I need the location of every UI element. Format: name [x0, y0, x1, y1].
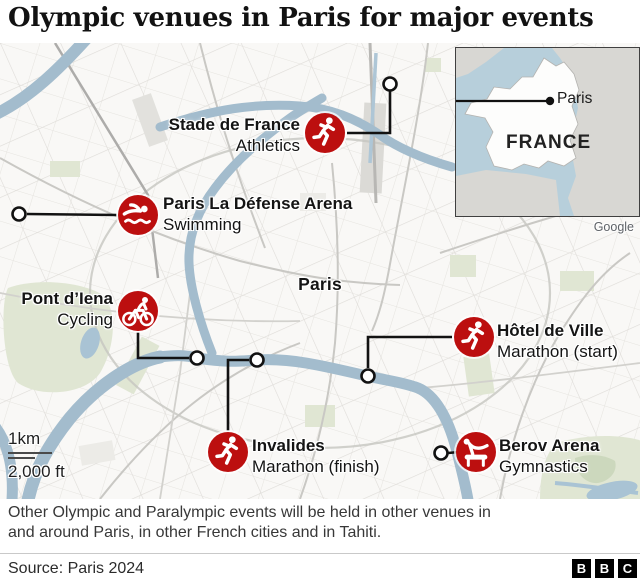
venue-label-hotel-de-ville: Hôtel de Ville Marathon (start) [497, 320, 618, 362]
swimmer-icon [118, 195, 158, 235]
marker-cycling [118, 291, 158, 331]
scale-metric-label: 1km [8, 429, 65, 448]
inset-city-label: Paris [557, 90, 592, 108]
bbc-logo-block: B [572, 559, 591, 578]
scale-imperial-label: 2,000 ft [8, 462, 65, 481]
venue-label-invalides: Invalides Marathon (finish) [252, 435, 380, 477]
venue-sport: Swimming [163, 214, 352, 235]
inset-country-label: FRANCE [506, 132, 591, 154]
header: Olympic venues in Paris for major events [0, 0, 640, 43]
google-attribution: Google [594, 220, 634, 234]
source-text: Source: Paris 2024 [8, 560, 144, 578]
scale-line-metric [8, 452, 52, 454]
caption-text: Other Olympic and Paralympic events will… [8, 503, 513, 543]
marker-gymnastics [456, 432, 496, 472]
marker-swimming [118, 195, 158, 235]
marker-athletics [305, 113, 345, 153]
venue-sport: Marathon (start) [497, 341, 618, 362]
venue-label-la-defense: Paris La Défense Arena Swimming [163, 193, 352, 235]
venue-name: Paris La Défense Arena [163, 193, 352, 214]
marker-marathon-finish [208, 432, 248, 472]
inset-paris-dot [546, 97, 554, 105]
page-title: Olympic venues in Paris for major events [8, 3, 593, 33]
venue-name: Stade de France [169, 114, 300, 135]
venue-label-berov-arena: Berov Arena Gymnastics [499, 435, 599, 477]
france-inset-map: Paris FRANCE [455, 47, 640, 217]
venue-label-pont-d-iena: Pont d’Iena Cycling [21, 288, 113, 330]
venue-name: Hôtel de Ville [497, 320, 618, 341]
bbc-logo-block: B [595, 559, 614, 578]
cyclist-icon [118, 291, 158, 331]
infographic: Olympic venues in Paris for major events [0, 0, 640, 583]
runner-icon [208, 432, 248, 472]
caption-area: Other Olympic and Paralympic events will… [0, 499, 640, 553]
venue-sport: Gymnastics [499, 456, 599, 477]
marker-marathon-start [454, 317, 494, 357]
scale-bar: 1km 2,000 ft [8, 429, 65, 481]
bbc-logo-block: C [618, 559, 637, 578]
venue-sport: Marathon (finish) [252, 456, 380, 477]
venue-name: Berov Arena [499, 435, 599, 456]
footer-bar: Source: Paris 2024 B B C [0, 553, 640, 583]
venue-sport: Cycling [21, 309, 113, 330]
city-label-paris: Paris [298, 274, 342, 295]
runner-icon [454, 317, 494, 357]
runner-icon [305, 113, 345, 153]
venue-sport: Athletics [169, 135, 300, 156]
venue-name: Invalides [252, 435, 380, 456]
venue-name: Pont d’Iena [21, 288, 113, 309]
paris-map: Stade de France Athletics Paris La Défen… [0, 43, 640, 499]
scale-line-imperial [8, 457, 35, 459]
gymnast-icon [456, 432, 496, 472]
bbc-logo: B B C [572, 559, 637, 578]
venue-label-stade-de-france: Stade de France Athletics [169, 114, 300, 156]
